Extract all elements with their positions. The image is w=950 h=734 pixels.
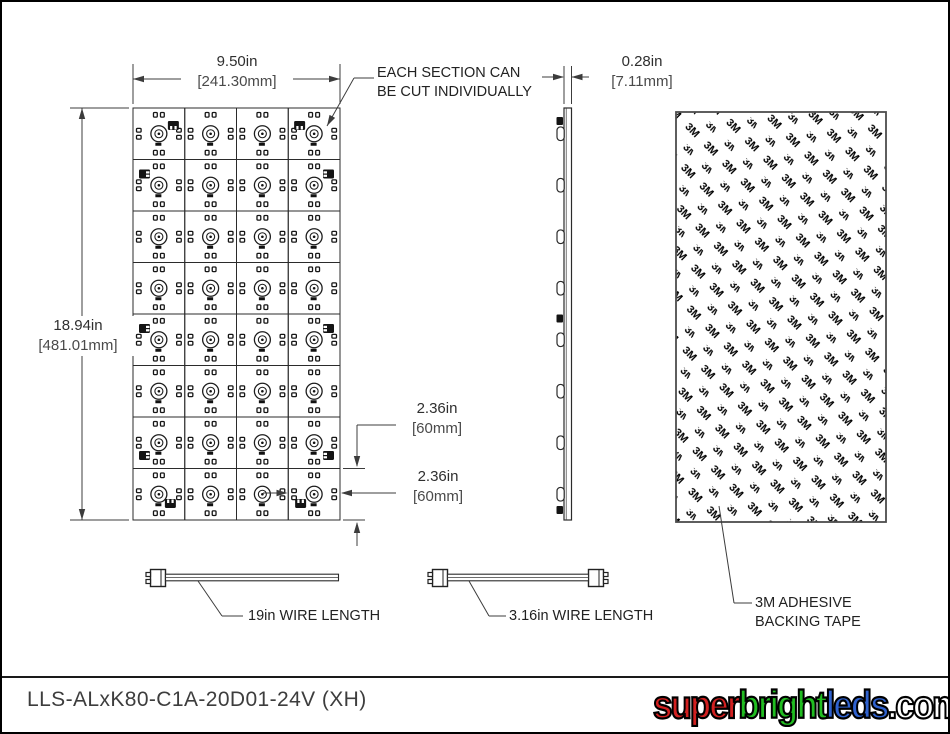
drawing-sheet: 3M3M 9.50in [241.30mm] 18.94in [481.01mm… [0, 0, 950, 734]
logo-segment-leds: leds [825, 684, 887, 727]
title-block-divider [0, 676, 950, 678]
logo-segment-com: .com [888, 684, 950, 727]
dimension-lines [70, 64, 752, 603]
dim-col-pitch: 2.36in [60mm] [398, 467, 478, 507]
technical-drawing: 3M3M [0, 0, 950, 676]
dim-row-pitch: 2.36in [60mm] [397, 399, 477, 439]
side-view [557, 108, 572, 520]
tape-label: 3M ADHESIVE BACKING TAPE [755, 594, 861, 631]
logo-segment-super: super [653, 684, 738, 727]
part-number: LLS-ALxK80-C1A-20D01-24V (XH) [27, 688, 367, 712]
back-view-tape [676, 112, 886, 522]
cut-callout: EACH SECTION CAN BE CUT INDIVIDUALLY [377, 64, 532, 101]
dim-height: 18.94in [481.01mm] [22, 316, 134, 356]
wire2-label: 3.16in WIRE LENGTH [509, 607, 653, 626]
front-view [133, 108, 340, 520]
brand-logo: superbrightleds.com [653, 686, 950, 726]
dim-width: 9.50in [241.30mm] [181, 52, 293, 92]
logo-segment-bright: bright [738, 684, 825, 727]
dim-thickness: 0.28in [7.11mm] [592, 52, 692, 92]
wire1-label: 19in WIRE LENGTH [248, 607, 380, 626]
